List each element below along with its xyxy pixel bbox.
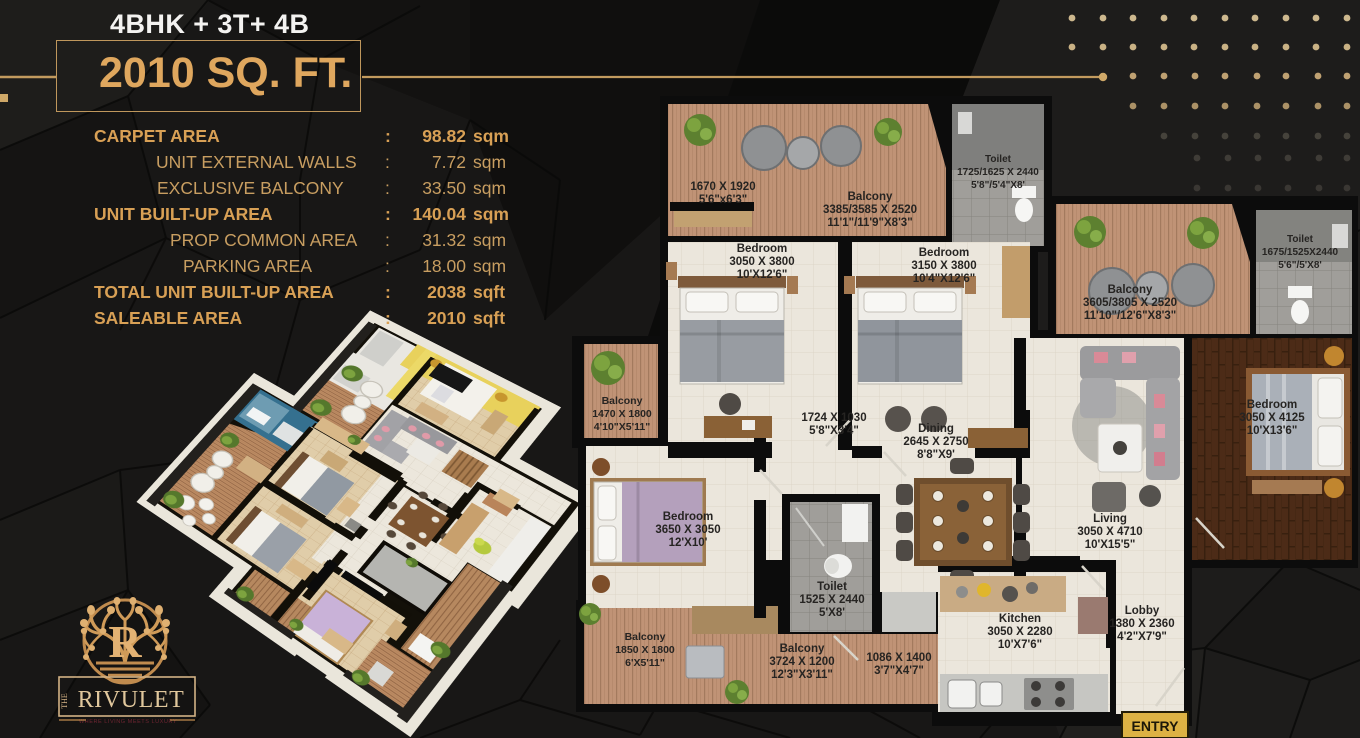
svg-text:ENTRY: ENTRY [1132,718,1180,734]
svg-text:1086 X 1400: 1086 X 1400 [866,652,931,664]
svg-text:10'X7'6": 10'X7'6" [998,639,1042,651]
svg-text:5'8"X3'4": 5'8"X3'4" [809,425,859,437]
svg-text:1380 X 2360: 1380 X 2360 [1109,618,1174,630]
svg-text:5'6"/5'X8': 5'6"/5'X8' [1278,260,1322,271]
svg-text:6'X5'11": 6'X5'11" [625,657,665,669]
svg-text:5'X8': 5'X8' [819,607,845,619]
svg-text:1670 X 1920: 1670 X 1920 [690,181,755,193]
svg-text:3605/3805 X 2520: 3605/3805 X 2520 [1083,297,1177,309]
svg-text:WHERE LIVING MEETS LUXURY: WHERE LIVING MEETS LUXURY [79,719,177,725]
svg-text:Toilet: Toilet [985,154,1012,165]
svg-text:10'X15'5": 10'X15'5" [1085,539,1136,551]
svg-text:Balcony: Balcony [780,643,825,655]
svg-text:Balcony: Balcony [848,191,893,203]
svg-text:5'6"x6'3": 5'6"x6'3" [699,194,747,206]
svg-text:Bedroom: Bedroom [919,247,969,259]
svg-text:2645 X 2750: 2645 X 2750 [903,436,968,448]
svg-text:3050 X 2280: 3050 X 2280 [987,626,1052,638]
svg-text:1525 X 2440: 1525 X 2440 [799,594,864,606]
svg-text:3724 X 1200: 3724 X 1200 [769,656,834,668]
svg-text:3'7"X4'7": 3'7"X4'7" [874,665,924,677]
svg-text:RIVULET: RIVULET [78,687,185,713]
svg-text:11'1"/11'9"X8'3": 11'1"/11'9"X8'3" [827,217,912,229]
svg-text:1724 X 1030: 1724 X 1030 [801,412,866,424]
svg-text:3650 X 3050: 3650 X 3050 [655,524,720,536]
svg-text:3050 X 4710: 3050 X 4710 [1077,526,1142,538]
svg-text:Lobby: Lobby [1125,605,1160,617]
svg-text:11'10"/12'6"X8'3": 11'10"/12'6"X8'3" [1084,310,1176,322]
svg-text:R: R [108,616,142,667]
svg-text:Balcony: Balcony [1108,284,1153,296]
svg-text:3050 X 3800: 3050 X 3800 [729,256,794,268]
svg-text:4'10"X5'11": 4'10"X5'11" [594,421,650,433]
svg-text:Balcony: Balcony [602,395,643,407]
svg-text:10'X12'6": 10'X12'6" [737,269,788,281]
svg-text:Toilet: Toilet [817,581,847,593]
svg-text:Dining: Dining [918,423,954,435]
svg-text:3050 X 4125: 3050 X 4125 [1239,412,1305,424]
svg-text:1470 X 1800: 1470 X 1800 [592,408,652,420]
svg-text:3150 X 3800: 3150 X 3800 [911,260,976,272]
svg-text:4'2"X7'9": 4'2"X7'9" [1117,631,1167,643]
svg-text:1725/1625 X 2440: 1725/1625 X 2440 [957,167,1039,178]
svg-text:Bedroom: Bedroom [663,511,713,523]
svg-text:THE: THE [60,693,69,709]
svg-text:12'X10': 12'X10' [669,537,708,549]
svg-text:10'4"X12'6": 10'4"X12'6" [913,273,975,285]
svg-text:3385/3585 X 2520: 3385/3585 X 2520 [823,204,917,216]
svg-text:5'8"/5'4"X8': 5'8"/5'4"X8' [971,180,1025,191]
svg-text:10'X13'6": 10'X13'6" [1247,425,1298,437]
svg-text:Balcony: Balcony [625,631,666,643]
svg-text:8'8"X9': 8'8"X9' [917,449,955,461]
svg-text:1675/1525X2440: 1675/1525X2440 [1262,247,1339,258]
svg-text:Bedroom: Bedroom [737,243,787,255]
svg-text:Bedroom: Bedroom [1247,399,1297,411]
svg-text:Kitchen: Kitchen [999,613,1041,625]
svg-text:1850 X 1800: 1850 X 1800 [615,644,675,656]
svg-text:12'3"X3'11": 12'3"X3'11" [771,669,833,681]
svg-text:Toilet: Toilet [1287,234,1314,245]
svg-text:Living: Living [1093,513,1127,525]
